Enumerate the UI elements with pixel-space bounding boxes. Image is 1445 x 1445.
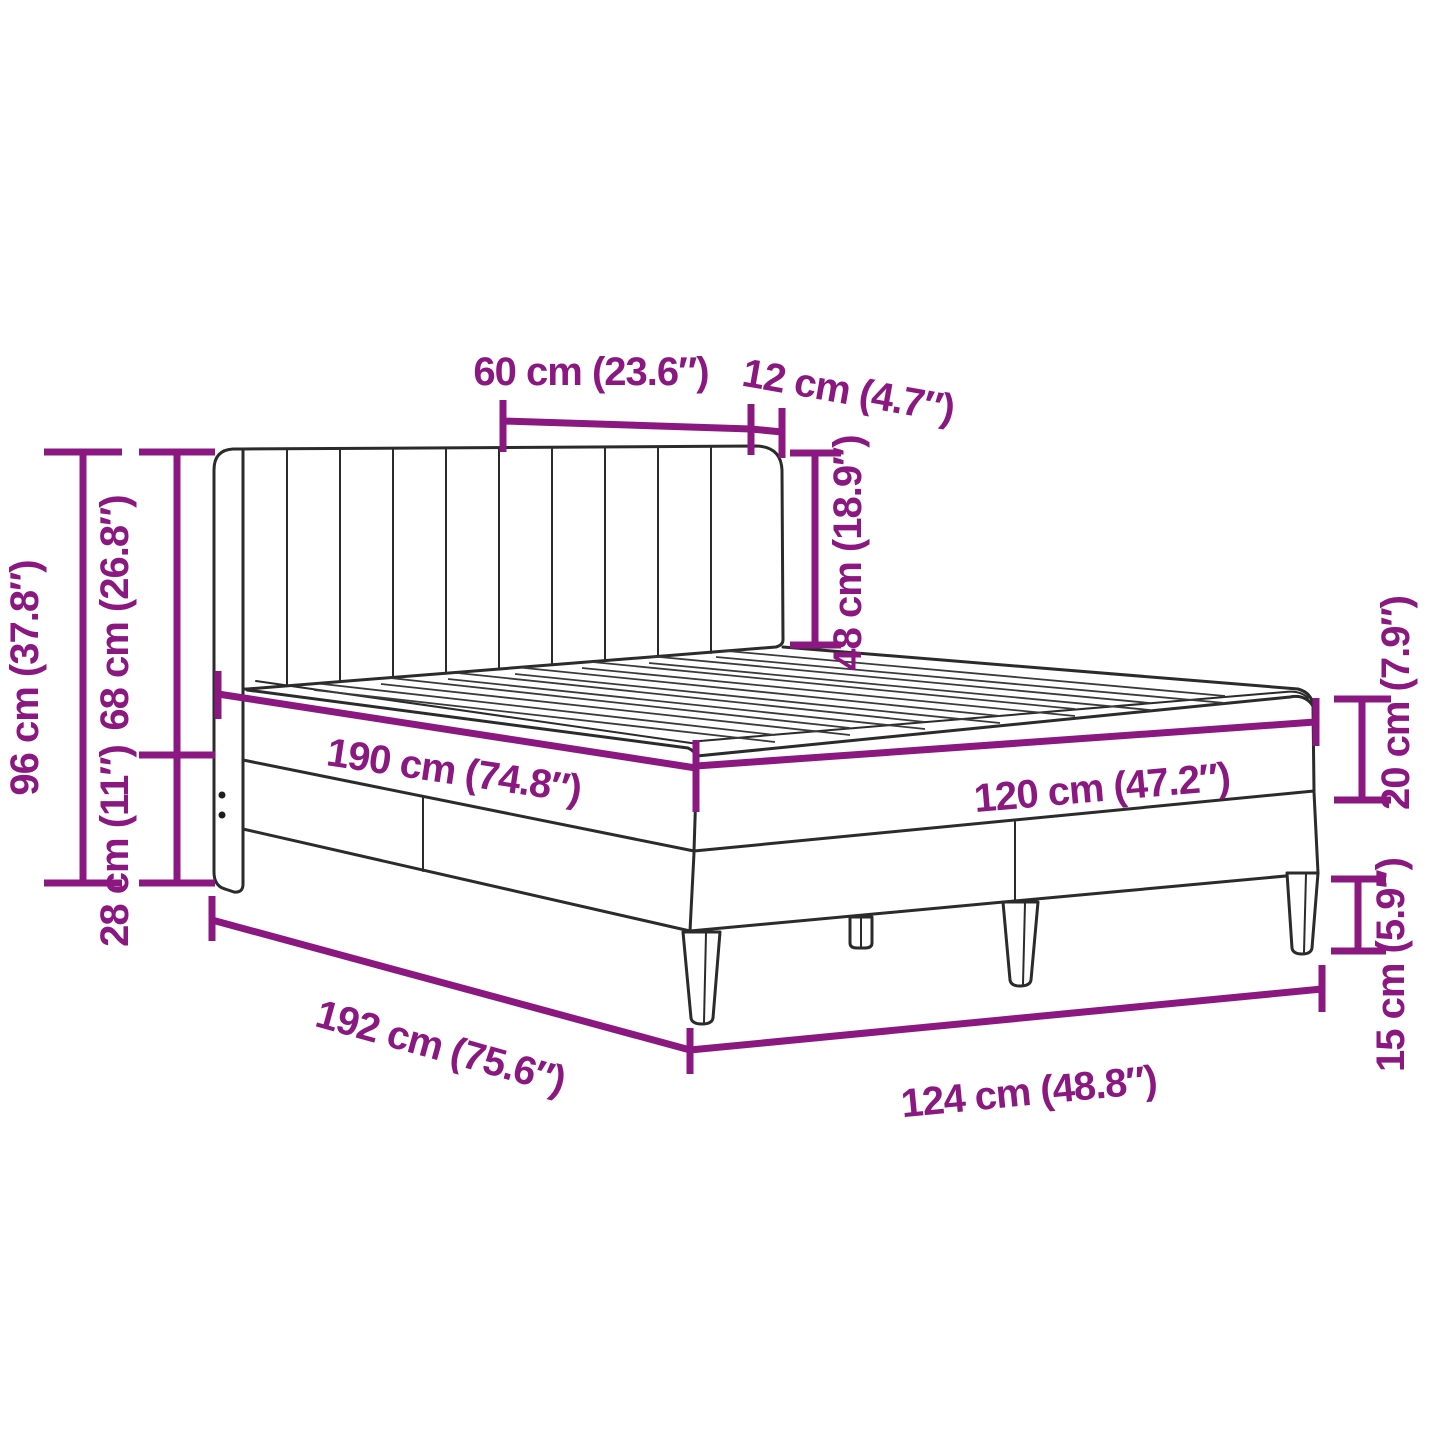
front-middle-leg [1003, 902, 1038, 986]
headboard-side-panel [214, 449, 243, 892]
headboard-panel [243, 446, 783, 689]
label-headboard-section-width: 60 cm (23.6″) [473, 350, 708, 394]
front-left-leg [683, 932, 720, 1024]
label-headboard-wing-width: 12 cm (4.7″) [739, 351, 957, 431]
label-leg-height: 15 cm (5.9″) [1369, 858, 1413, 1072]
label-frame-width: 124 cm (48.8″) [899, 1058, 1158, 1126]
dim-frame-width [690, 965, 1322, 1050]
label-total-height: 96 cm (37.8″) [3, 560, 47, 795]
label-headboard-height: 68 cm (26.8″) [93, 495, 137, 730]
label-mattress-thickness: 20 cm (7.9″) [1374, 596, 1418, 810]
base-box [243, 792, 1318, 931]
dim-headboard-and-base-height [139, 452, 215, 883]
screw-hole-dot [219, 812, 226, 819]
screw-hole-dot [219, 792, 226, 799]
label-headboard-above-mattress: 48 cm (18.9″) [826, 435, 870, 670]
diagram-svg: 60 cm (23.6″) 12 cm (4.7″) 48 cm (18.9″)… [0, 0, 1445, 1445]
front-right-leg [1287, 873, 1318, 954]
bed-dimension-diagram: 60 cm (23.6″) 12 cm (4.7″) 48 cm (18.9″)… [0, 0, 1445, 1445]
label-base-section-height: 28 cm (11″) [93, 745, 137, 947]
